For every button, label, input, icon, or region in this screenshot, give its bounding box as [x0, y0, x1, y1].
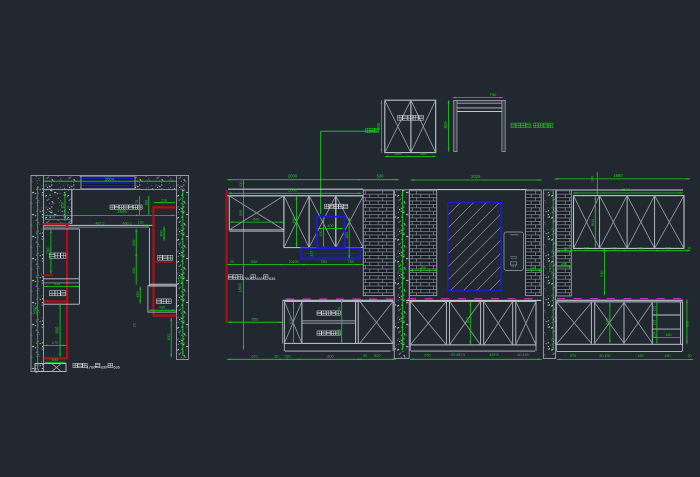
svg-text:360: 360: [160, 230, 164, 236]
svg-text:670: 670: [289, 318, 293, 324]
svg-text:100: 100: [591, 176, 595, 182]
svg-text:636: 636: [269, 276, 276, 281]
svg-text:20: 20: [688, 246, 692, 250]
svg-text:800: 800: [291, 216, 296, 223]
svg-text:1780*: 1780*: [87, 364, 98, 369]
svg-text:430: 430: [159, 306, 165, 310]
svg-text:20: 20: [230, 260, 234, 264]
svg-text:.: .: [553, 124, 554, 129]
svg-text:750: 750: [490, 92, 497, 97]
svg-text:125: 125: [309, 251, 313, 257]
svg-text:50 430: 50 430: [600, 354, 611, 358]
svg-text:470: 470: [583, 246, 589, 250]
svg-text:790: 790: [284, 354, 290, 358]
svg-text:160: 160: [144, 200, 148, 206]
svg-text:470: 470: [637, 246, 643, 250]
svg-text:457.5: 457.5: [490, 353, 499, 357]
svg-text:740: 740: [599, 270, 604, 277]
svg-text:1580: 1580: [621, 187, 631, 192]
svg-text:,: ,: [531, 124, 532, 129]
svg-text:2604: 2604: [105, 176, 115, 181]
svg-text:100: 100: [239, 181, 243, 187]
svg-text:223: 223: [653, 320, 657, 326]
svg-text:650: 650: [345, 232, 349, 238]
svg-text:470: 470: [665, 246, 671, 250]
svg-text:170: 170: [52, 341, 58, 345]
svg-text:2025: 2025: [471, 174, 481, 179]
svg-text:20: 20: [564, 246, 568, 250]
svg-text:570: 570: [424, 354, 430, 358]
svg-text:400: 400: [327, 224, 333, 228]
svg-text:20: 20: [688, 354, 692, 358]
svg-text:450: 450: [420, 266, 426, 270]
svg-text:2000: 2000: [288, 187, 298, 192]
svg-text:650: 650: [61, 202, 65, 208]
svg-text:450: 450: [136, 291, 140, 297]
svg-text:670: 670: [251, 354, 257, 358]
svg-text:210: 210: [49, 215, 55, 219]
svg-text:830: 830: [685, 321, 689, 327]
svg-text:780: 780: [320, 260, 326, 264]
svg-text:1960: 1960: [613, 173, 623, 178]
svg-text:450: 450: [666, 333, 672, 337]
svg-text:670: 670: [466, 317, 470, 323]
svg-text:50 429: 50 429: [518, 353, 529, 357]
svg-text:780: 780: [348, 260, 354, 264]
svg-text:800: 800: [327, 354, 333, 358]
svg-text:636: 636: [113, 364, 120, 369]
svg-text:240: 240: [143, 224, 149, 228]
svg-text:2000: 2000: [288, 173, 298, 178]
svg-text:500: 500: [239, 210, 243, 216]
svg-text:470: 470: [611, 246, 617, 250]
svg-text:625: 625: [337, 329, 341, 335]
svg-text:75: 75: [337, 307, 341, 311]
svg-text:435: 435: [54, 282, 60, 286]
svg-text:50 457.5: 50 457.5: [451, 353, 465, 357]
svg-text:1545: 1545: [117, 209, 127, 214]
svg-text:224: 224: [653, 332, 657, 338]
svg-text:1800: 1800: [238, 283, 243, 293]
svg-text:632: 632: [166, 333, 171, 340]
svg-text:670: 670: [606, 318, 610, 324]
svg-text:450: 450: [665, 354, 671, 358]
svg-text:300: 300: [395, 151, 402, 156]
svg-text:370: 370: [135, 200, 139, 206]
svg-text:800: 800: [55, 326, 60, 334]
svg-text:300: 300: [420, 151, 427, 156]
svg-text:800: 800: [590, 218, 595, 225]
svg-text:840: 840: [253, 216, 260, 221]
svg-text:20100: 20100: [289, 260, 299, 264]
svg-text:2470: 2470: [548, 263, 553, 273]
svg-text:450: 450: [319, 230, 323, 236]
svg-text:850: 850: [252, 316, 259, 321]
svg-text:495: 495: [561, 262, 567, 266]
svg-text:20: 20: [133, 323, 137, 327]
svg-text:520: 520: [377, 173, 385, 178]
svg-text:2470: 2470: [397, 263, 402, 273]
svg-text:520: 520: [374, 354, 380, 358]
svg-text:223: 223: [653, 305, 657, 311]
svg-text:2322: 2322: [177, 275, 182, 285]
svg-text:487.2: 487.2: [96, 222, 105, 226]
svg-text:730: 730: [46, 247, 51, 255]
svg-text:800: 800: [376, 122, 381, 130]
svg-text:240: 240: [530, 266, 536, 270]
svg-text:430: 430: [131, 239, 136, 246]
svg-text:830: 830: [52, 358, 58, 362]
svg-text:210: 210: [161, 198, 167, 202]
svg-text:430: 430: [131, 267, 136, 274]
svg-text:50: 50: [363, 354, 367, 358]
svg-text:430: 430: [638, 354, 644, 358]
svg-text:460.3: 460.3: [123, 222, 132, 226]
svg-text:800: 800: [443, 121, 448, 129]
svg-text:570: 570: [570, 354, 576, 358]
svg-text:2300: 2300: [32, 305, 37, 315]
svg-text:20: 20: [274, 354, 278, 358]
svg-text:850: 850: [251, 260, 257, 264]
